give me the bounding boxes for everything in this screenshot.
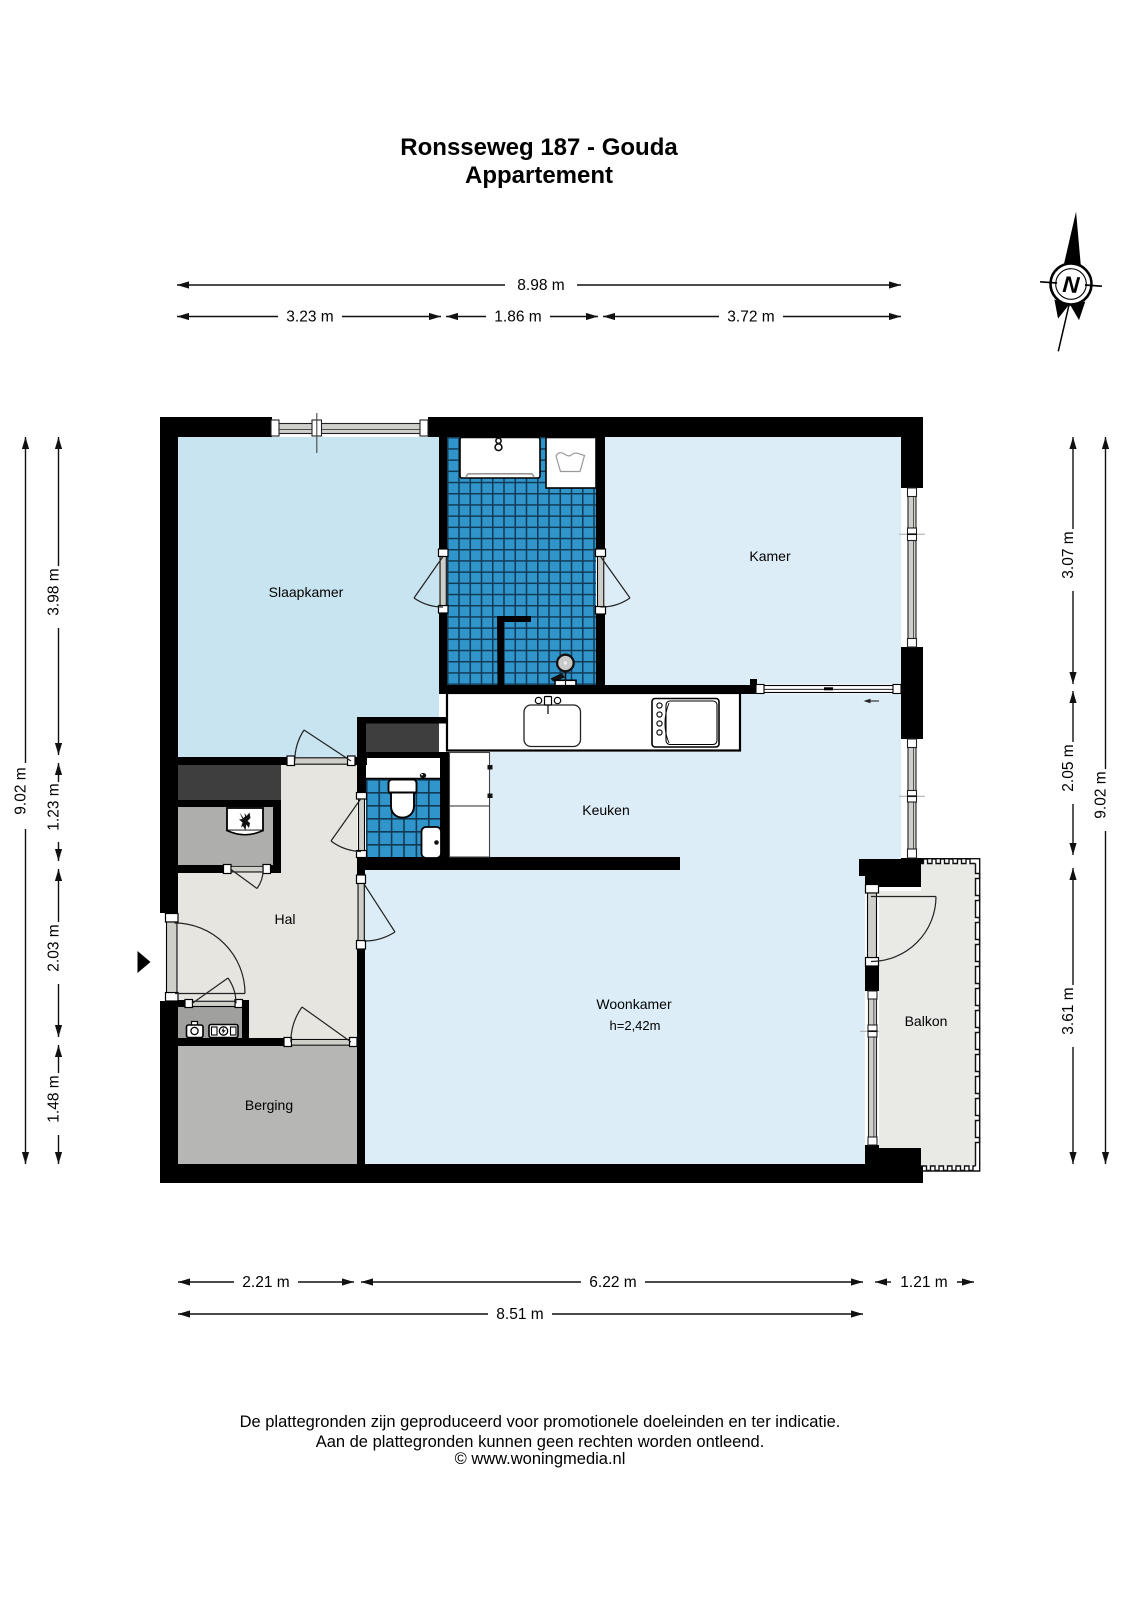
svg-text:Woonkamer: Woonkamer [596,996,672,1012]
svg-text:3.23 m: 3.23 m [286,309,333,326]
svg-text:3.72 m: 3.72 m [727,309,774,326]
svg-text:2.21 m: 2.21 m [242,1274,289,1291]
svg-text:3.61 m: 3.61 m [1060,987,1077,1034]
svg-text:2.03 m: 2.03 m [46,924,63,971]
svg-text:1.86 m: 1.86 m [494,309,541,326]
svg-text:1.21 m: 1.21 m [900,1274,947,1291]
svg-text:9.02 m: 9.02 m [1093,771,1110,818]
svg-text:8.98 m: 8.98 m [517,277,564,294]
svg-text:1.48 m: 1.48 m [46,1075,63,1122]
svg-text:2.05 m: 2.05 m [1060,744,1077,791]
svg-text:8.51 m: 8.51 m [496,1306,543,1323]
svg-text:9.02 m: 9.02 m [13,767,30,814]
svg-text:3.98 m: 3.98 m [46,568,63,615]
svg-text:Appartement: Appartement [465,162,613,189]
svg-text:Kamer: Kamer [749,548,791,564]
svg-text:© www.woningmedia.nl: © www.woningmedia.nl [455,1450,626,1468]
svg-text:h=2,42m: h=2,42m [610,1018,661,1033]
svg-text:Ronsseweg 187 - Gouda: Ronsseweg 187 - Gouda [400,134,678,161]
svg-text:Balkon: Balkon [905,1013,948,1029]
svg-text:Slaapkamer: Slaapkamer [269,584,344,600]
svg-text:Aan de plattegronden kunnen ge: Aan de plattegronden kunnen geen rechten… [316,1433,765,1451]
svg-text:N: N [1062,271,1081,298]
svg-text:De plattegronden zijn geproduc: De plattegronden zijn geproduceerd voor … [240,1413,841,1431]
svg-text:Keuken: Keuken [582,802,629,818]
svg-text:1.23 m: 1.23 m [46,783,63,830]
svg-text:Hal: Hal [274,911,295,927]
svg-text:Berging: Berging [245,1097,293,1113]
svg-text:3.07 m: 3.07 m [1060,531,1077,578]
svg-text:6.22 m: 6.22 m [589,1274,636,1291]
